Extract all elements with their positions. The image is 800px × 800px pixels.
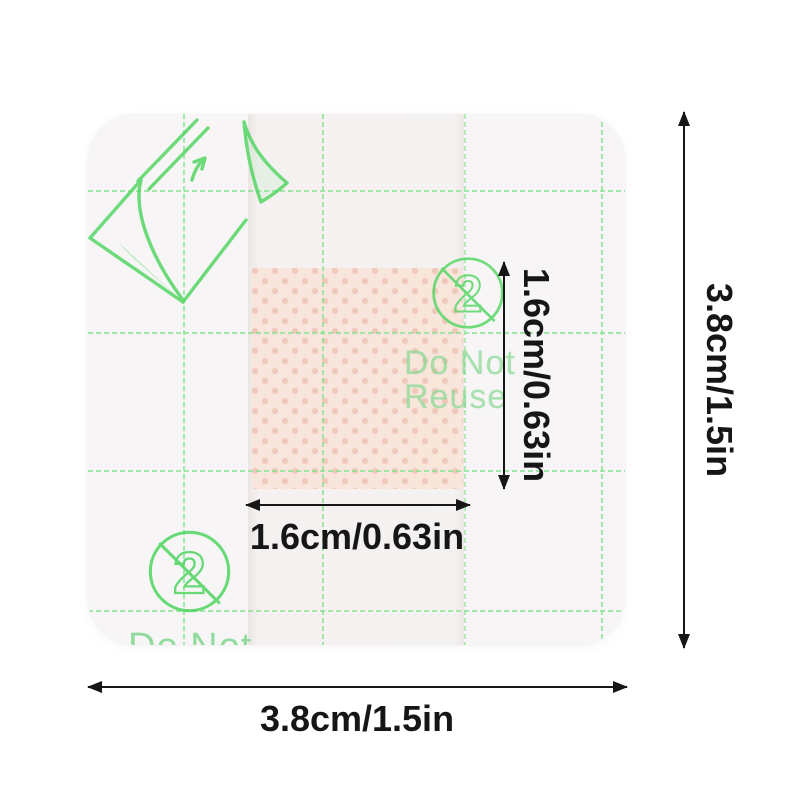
pad-width-dimension-arrow bbox=[246, 504, 470, 506]
arrow-down-icon bbox=[678, 634, 690, 649]
arrow-left-icon bbox=[245, 499, 260, 511]
do-not-reuse-line1: Do Not bbox=[404, 346, 516, 380]
do-not-reuse-text: Do Not Reuse bbox=[404, 346, 516, 414]
pad-width-label: 1.6cm/0.63in bbox=[250, 516, 464, 558]
arrow-right-icon bbox=[456, 499, 471, 511]
overall-width-label: 3.8cm/1.5in bbox=[260, 698, 454, 740]
overall-height-dimension-arrow bbox=[683, 112, 685, 648]
do-not-reuse-line2: Reuse bbox=[404, 380, 516, 414]
do-not-reuse-icon: 2 bbox=[429, 254, 507, 332]
pad-height-dimension-arrow bbox=[503, 262, 505, 489]
arrow-left-icon bbox=[87, 681, 102, 693]
arrow-down-icon bbox=[498, 475, 510, 490]
do-not-text-partial: Do Not bbox=[128, 626, 252, 645]
overall-width-dimension-arrow bbox=[88, 686, 627, 688]
product-image: 2 Do Not Reuse 2 Do Not 1.6cm/0.63in bbox=[0, 0, 800, 800]
arrow-up-icon bbox=[678, 111, 690, 126]
do-not-reuse-icon: 2 bbox=[145, 527, 234, 616]
peel-corner-illustration-icon bbox=[88, 114, 318, 324]
overall-height-label: 3.8cm/1.5in bbox=[740, 380, 800, 422]
arrow-up-icon bbox=[498, 261, 510, 276]
grid-line bbox=[322, 114, 324, 645]
arrow-right-icon bbox=[613, 681, 628, 693]
